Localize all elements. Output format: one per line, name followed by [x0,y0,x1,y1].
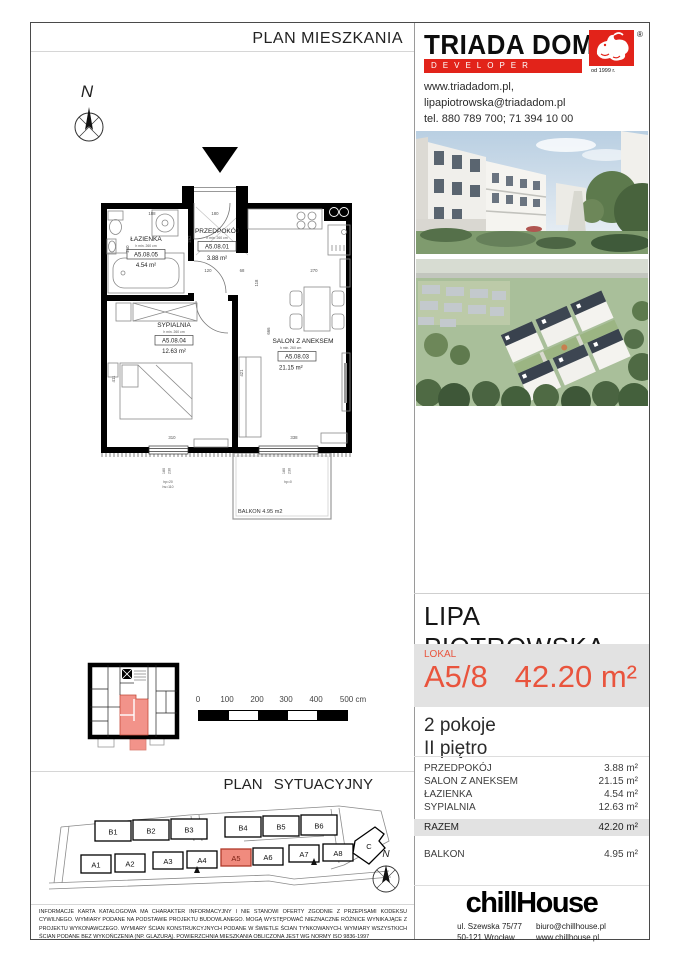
scale-tick: 500 cm [340,695,366,704]
building-label: B1 [108,828,117,837]
plan-section-title: PLAN MIESZKANIA [31,30,403,48]
balcony: BALKON 4.95 m2 [233,453,331,519]
developer-since: od 1999 r. [591,68,615,74]
floor-overview-mini-plan [86,661,181,761]
dim: 411 [111,375,116,382]
disclaimer-text: INFORMACJE KARTA KATALOGOWA MA CHARAKTER… [39,908,407,942]
room-area: 12.63 m² [162,349,186,355]
catalog-page: PLAN MIESZKANIA N BALKON 4.95 m2 [0,0,679,960]
window-dim: hp=0 [284,480,292,484]
divider-line [31,51,414,52]
neighboring-houses [418,281,510,327]
agency-logo-text: chillHouse [414,887,649,920]
divider-line [31,904,414,905]
living-room-furniture [239,209,350,443]
balcony-row: BALKON 4.95 m² [424,849,638,861]
window-dim: hs=110 [163,485,174,489]
building-label: A3 [163,857,172,866]
entrance-marker-icon [202,147,238,173]
total-value: 42.20 m² [599,822,638,833]
scale-bar [198,710,348,721]
row-value: 21.15 m² [599,776,638,787]
dim: 180 [211,211,219,216]
balcony-value: 4.95 m² [604,849,638,860]
developer-contact: www.triadadom.pl, lipapiotrowska@triadad… [424,80,573,128]
photo-street-view [416,131,648,254]
room-height: h min. 260 cm [135,244,156,248]
room-name: ŁAZIENKA [130,236,162,243]
row-value: 3.88 m² [604,763,638,774]
building-label: A6 [263,853,272,862]
building-label: B2 [146,827,155,836]
dim: 260 [125,245,130,253]
window-dim: 180 [162,468,166,474]
building-label: B4 [238,824,247,833]
site-buildings: B1 B2 B3 B4 B5 B6 A1 A2 A3 A4 A5 A6 A7 A… [81,815,385,873]
developer-phone: tel. 880 789 700; 71 394 10 00 [424,112,573,128]
scale-bar-labels: 0 100 200 300 400 500 cm [191,695,361,705]
dim: 68 [240,268,245,273]
dim: 262 [187,235,192,243]
unit-summary: 2 pokoje II piętro [424,714,496,761]
balcony-label: BALKON 4.95 m2 [238,509,282,515]
balcony-label: BALKON [424,849,465,860]
room-area: 3.88 m² [207,256,227,262]
developer-logo-text: TRIADA DOM [424,28,594,61]
agency-website: www.chillhouse.pl [536,933,606,944]
table-row: ŁAZIENKA 4.54 m² [424,789,638,801]
room-height: h min. 260 cm [280,346,301,350]
divider-line [414,756,649,757]
room-height: h min. 260 cm [163,330,184,334]
table-row: SYPIALNIA 12.63 m² [424,802,638,814]
column-divider [414,23,415,939]
developer-website: www.triadadom.pl, [424,80,573,96]
building-label: B3 [184,826,193,835]
scale-tick: 300 [279,695,292,704]
scale-tick: 200 [250,695,263,704]
room-name: PRZEDPOKÓJ [195,226,239,235]
window-dim: 230 [168,468,172,474]
dim: 310 [168,435,176,440]
room-area: 4.54 m² [136,263,156,269]
dim: 666 [266,327,271,335]
dim: 118 [254,279,259,286]
row-label: ŁAZIENKA [424,789,472,800]
divider-line [31,771,414,772]
dim: 188 [148,211,156,216]
divider-line [414,885,649,886]
scale-tick: 400 [309,695,322,704]
window-dim: 230 [288,468,292,474]
row-label: SYPIALNIA [424,802,476,813]
dim: 338 [290,435,298,440]
room-code: A5.08.05 [134,253,159,259]
rooms-count: 2 pokoje [424,714,496,737]
row-label: PRZEDPOKÓJ [424,763,492,774]
building-label: A4 [197,856,206,865]
row-value: 4.54 m² [604,789,638,800]
site-plan: B1 B2 B3 B4 B5 B6 A1 A2 A3 A4 A5 A6 A7 A… [39,791,414,903]
building-label: A8 [333,849,342,858]
compass-letter: N [382,849,390,860]
building-label: C [366,842,372,851]
catalog-card: PLAN MIESZKANIA N BALKON 4.95 m2 [30,22,650,940]
bull-icon [589,30,634,66]
room-code: A5.08.03 [285,355,310,361]
room-area: 21.15 m² [279,366,303,372]
developer-email: lipapiotrowska@triadadom.pl [424,96,573,112]
total-label: RAZEM [424,822,459,833]
agency-address: ul. Szewska 75/77 50-121 Wrocław [457,922,522,944]
developer-logo-mark [589,30,634,66]
total-row: RAZEM 42.20 m² [424,822,638,834]
agency-city: 50-121 Wrocław [457,933,522,944]
building-label: A5 [231,854,240,863]
scale-tick: 100 [220,695,233,704]
registered-trademark: ® [637,30,643,39]
room-name: SALON Z ANEKSEM [272,338,333,345]
floor-level: II piętro [424,737,496,760]
agency-contact: ul. Szewska 75/77 50-121 Wrocław biuro@c… [414,922,649,944]
window-annotations: 180 230 hp=20 hs=110 180 230 hp=0 [162,468,292,489]
building-label: A1 [91,861,100,870]
room-height: h min. 260 cm [206,236,227,240]
room-name: SYPIALNIA [157,322,191,329]
developer-tagline: DEVELOPER [424,59,582,73]
window-dim: 180 [282,468,286,474]
dim: 120 [204,268,212,273]
unit-total-area: 42.20 m² [424,659,637,695]
row-label: SALON Z ANEKSEM [424,776,518,787]
divider-line [414,593,649,594]
dim: 421 [239,369,244,377]
window-dim: hp=20 [163,480,173,484]
building-label: A2 [125,860,134,869]
photo-aerial-view [416,259,648,406]
table-row: PRZEDPOKÓJ 3.88 m² [424,763,638,775]
dim: 270 [310,268,318,273]
scale-tick: 0 [196,695,200,704]
room-code: A5.08.04 [162,339,187,345]
compass-letter: N [81,82,94,101]
floor-plan: BALKON 4.95 m2 [96,141,386,541]
row-value: 12.63 m² [599,802,638,813]
agency-street: ul. Szewska 75/77 [457,922,522,933]
building-label: A7 [299,850,308,859]
building-label: B5 [276,823,285,832]
room-code: A5.08.01 [205,245,230,251]
building-label: B6 [314,822,323,831]
table-row: SALON Z ANEKSEM 21.15 m² [424,776,638,788]
agency-web: biuro@chillhouse.pl www.chillhouse.pl [536,922,606,944]
agency-email: biuro@chillhouse.pl [536,922,606,933]
